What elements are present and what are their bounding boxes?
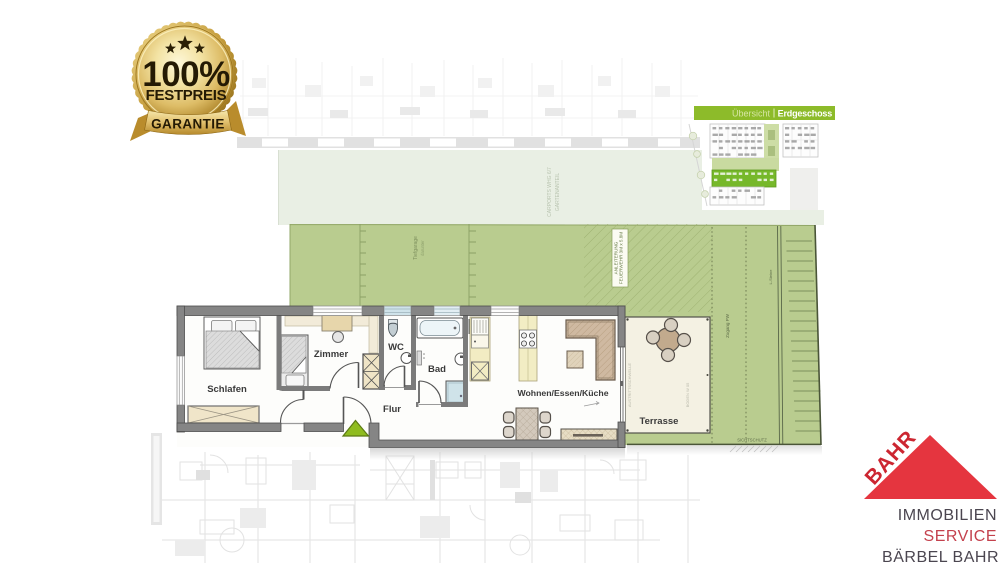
svg-text:Übersicht: Übersicht <box>732 109 771 119</box>
svg-text:Zimmer: Zimmer <box>314 349 349 360</box>
svg-text:WC: WC <box>388 342 404 353</box>
svg-text:SERVICE: SERVICE <box>924 528 997 545</box>
svg-text:Terrasse: Terrasse <box>640 416 679 427</box>
svg-text:L-Steine: L-Steine <box>768 269 773 285</box>
svg-text:CARPORTS WHG 6/7: CARPORTS WHG 6/7 <box>547 167 553 217</box>
svg-text:GARANTIE: GARANTIE <box>151 117 225 132</box>
svg-text:FEUERWEHR 3M x 5.8M: FEUERWEHR 3M x 5.8M <box>619 232 624 284</box>
svg-text:SICHTSCHUTZ: SICHTSCHUTZ <box>737 438 767 443</box>
svg-text:Schlafen: Schlafen <box>207 384 247 395</box>
svg-text:BODEN W 05: BODEN W 05 <box>685 382 690 407</box>
svg-text:Zugang PW: Zugang PW <box>725 313 730 338</box>
svg-text:GARTENANTEIL: GARTENANTEIL <box>555 173 561 211</box>
svg-text:Bad: Bad <box>428 364 446 375</box>
svg-text:Tiefgarage: Tiefgarage <box>413 236 419 260</box>
svg-text:Flur: Flur <box>383 404 401 415</box>
svg-text:AUSTRITTSSCHWELLE: AUSTRITTSSCHWELLE <box>627 363 632 408</box>
svg-text:BÄRBEL BAHR: BÄRBEL BAHR <box>882 548 999 563</box>
svg-text:darunter: darunter <box>420 240 425 256</box>
svg-text:Wohnen/Essen/Küche: Wohnen/Essen/Küche <box>517 388 608 398</box>
svg-text:Erdgeschoss: Erdgeschoss <box>778 109 833 119</box>
svg-text:IMMOBILIEN: IMMOBILIEN <box>898 507 997 524</box>
svg-text:FESTPREIS: FESTPREIS <box>146 87 227 104</box>
